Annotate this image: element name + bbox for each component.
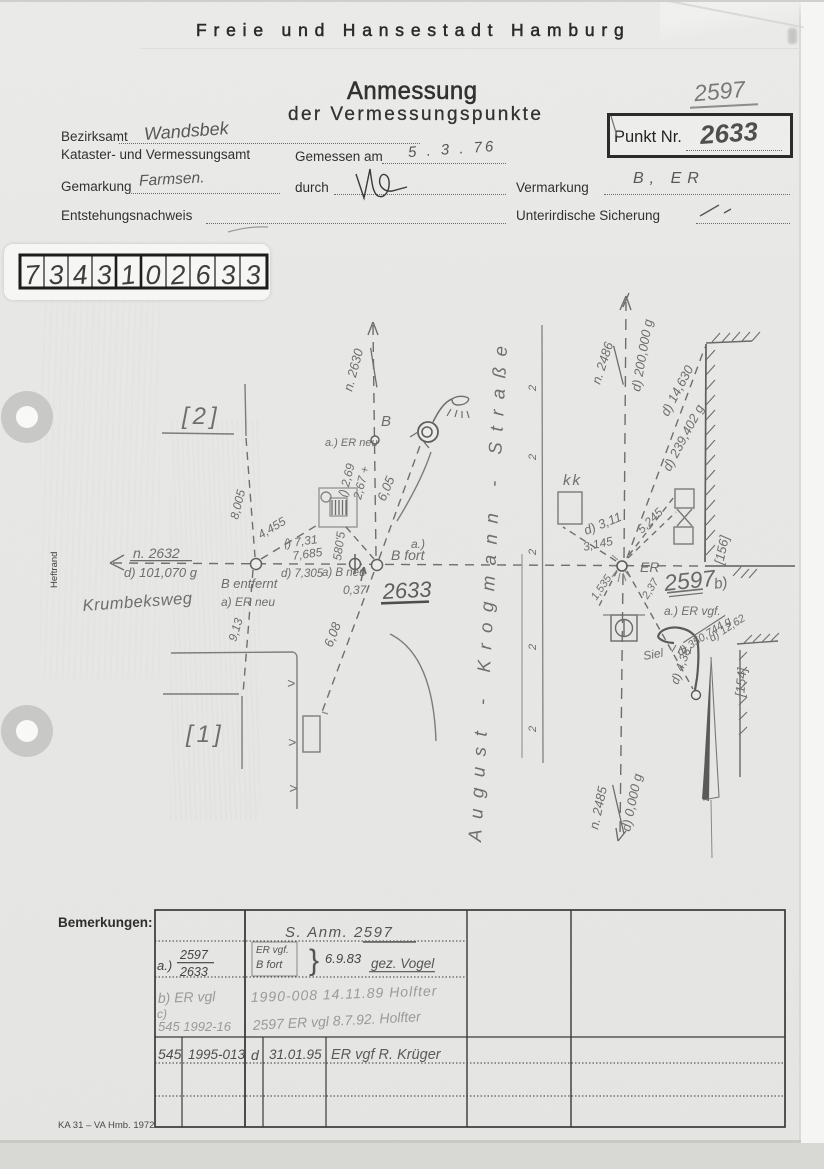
svg-text:2633: 2633	[381, 576, 433, 604]
svg-text:2: 2	[527, 644, 539, 651]
svg-text:B fort: B fort	[391, 547, 426, 563]
svg-text:6.9.83: 6.9.83	[325, 951, 362, 966]
svg-text:b) ER vgl: b) ER vgl	[158, 988, 217, 1006]
svg-text:Heftrand: Heftrand	[49, 552, 60, 588]
svg-text:B: B	[381, 413, 391, 430]
svg-text:0,37: 0,37	[343, 583, 368, 597]
svg-text:2597: 2597	[179, 948, 209, 962]
svg-text:d) 7,305: d) 7,305	[281, 568, 324, 580]
svg-text:3: 3	[220, 260, 237, 291]
svg-text:ER vgf.: ER vgf.	[256, 945, 289, 956]
svg-text:545 1992-16: 545 1992-16	[158, 1019, 232, 1034]
svg-text:31.01.95: 31.01.95	[269, 1047, 322, 1062]
svg-text:3: 3	[48, 260, 65, 291]
svg-text:ER: ER	[640, 559, 659, 575]
svg-text:2: 2	[169, 260, 187, 291]
svg-text:a) B neu: a) B neu	[322, 567, 366, 579]
svg-text:}: }	[309, 944, 319, 977]
svg-text:a) ER neu: a) ER neu	[221, 595, 275, 609]
svg-text:B fort: B fort	[256, 959, 283, 971]
svg-text:2633: 2633	[179, 965, 208, 979]
svg-text:>: >	[289, 780, 297, 796]
svg-text:3: 3	[245, 260, 262, 291]
svg-text:[154]: [154]	[732, 667, 750, 698]
svg-text:d) 101,070 g: d) 101,070 g	[124, 565, 198, 580]
svg-text:[1]: [1]	[185, 721, 225, 748]
svg-text:1995-013: 1995-013	[188, 1047, 246, 1062]
svg-text:gez. Vogel: gez. Vogel	[371, 956, 435, 971]
svg-text:2597: 2597	[662, 565, 718, 596]
svg-text:kk: kk	[563, 472, 582, 489]
svg-text:4: 4	[71, 259, 89, 290]
svg-text:2: 2	[527, 385, 539, 392]
svg-text:B entfernt: B entfernt	[221, 576, 279, 591]
svg-text:>: >	[288, 734, 296, 750]
svg-text:2: 2	[527, 726, 539, 733]
svg-text:S. Anm. 2597: S. Anm. 2597	[285, 924, 393, 941]
svg-text:545: 545	[158, 1046, 182, 1062]
svg-text:1: 1	[119, 259, 137, 290]
svg-text:2: 2	[527, 549, 539, 556]
svg-text:a.): a.)	[157, 958, 172, 973]
svg-text:6: 6	[195, 260, 213, 291]
svg-text:[2]: [2]	[181, 403, 221, 430]
svg-text:3: 3	[96, 260, 113, 291]
svg-text:d: d	[251, 1047, 260, 1063]
svg-text:>: >	[287, 675, 295, 691]
svg-text:n. 2632: n. 2632	[133, 545, 180, 561]
svg-text:0: 0	[145, 260, 160, 290]
svg-text:ER vgf R. Krüger: ER vgf R. Krüger	[331, 1047, 442, 1063]
svg-text:2: 2	[527, 454, 539, 461]
svg-text:a.) ER vgf.: a.) ER vgf.	[664, 604, 721, 618]
svg-text:a.) ER neu: a.) ER neu	[325, 437, 378, 449]
